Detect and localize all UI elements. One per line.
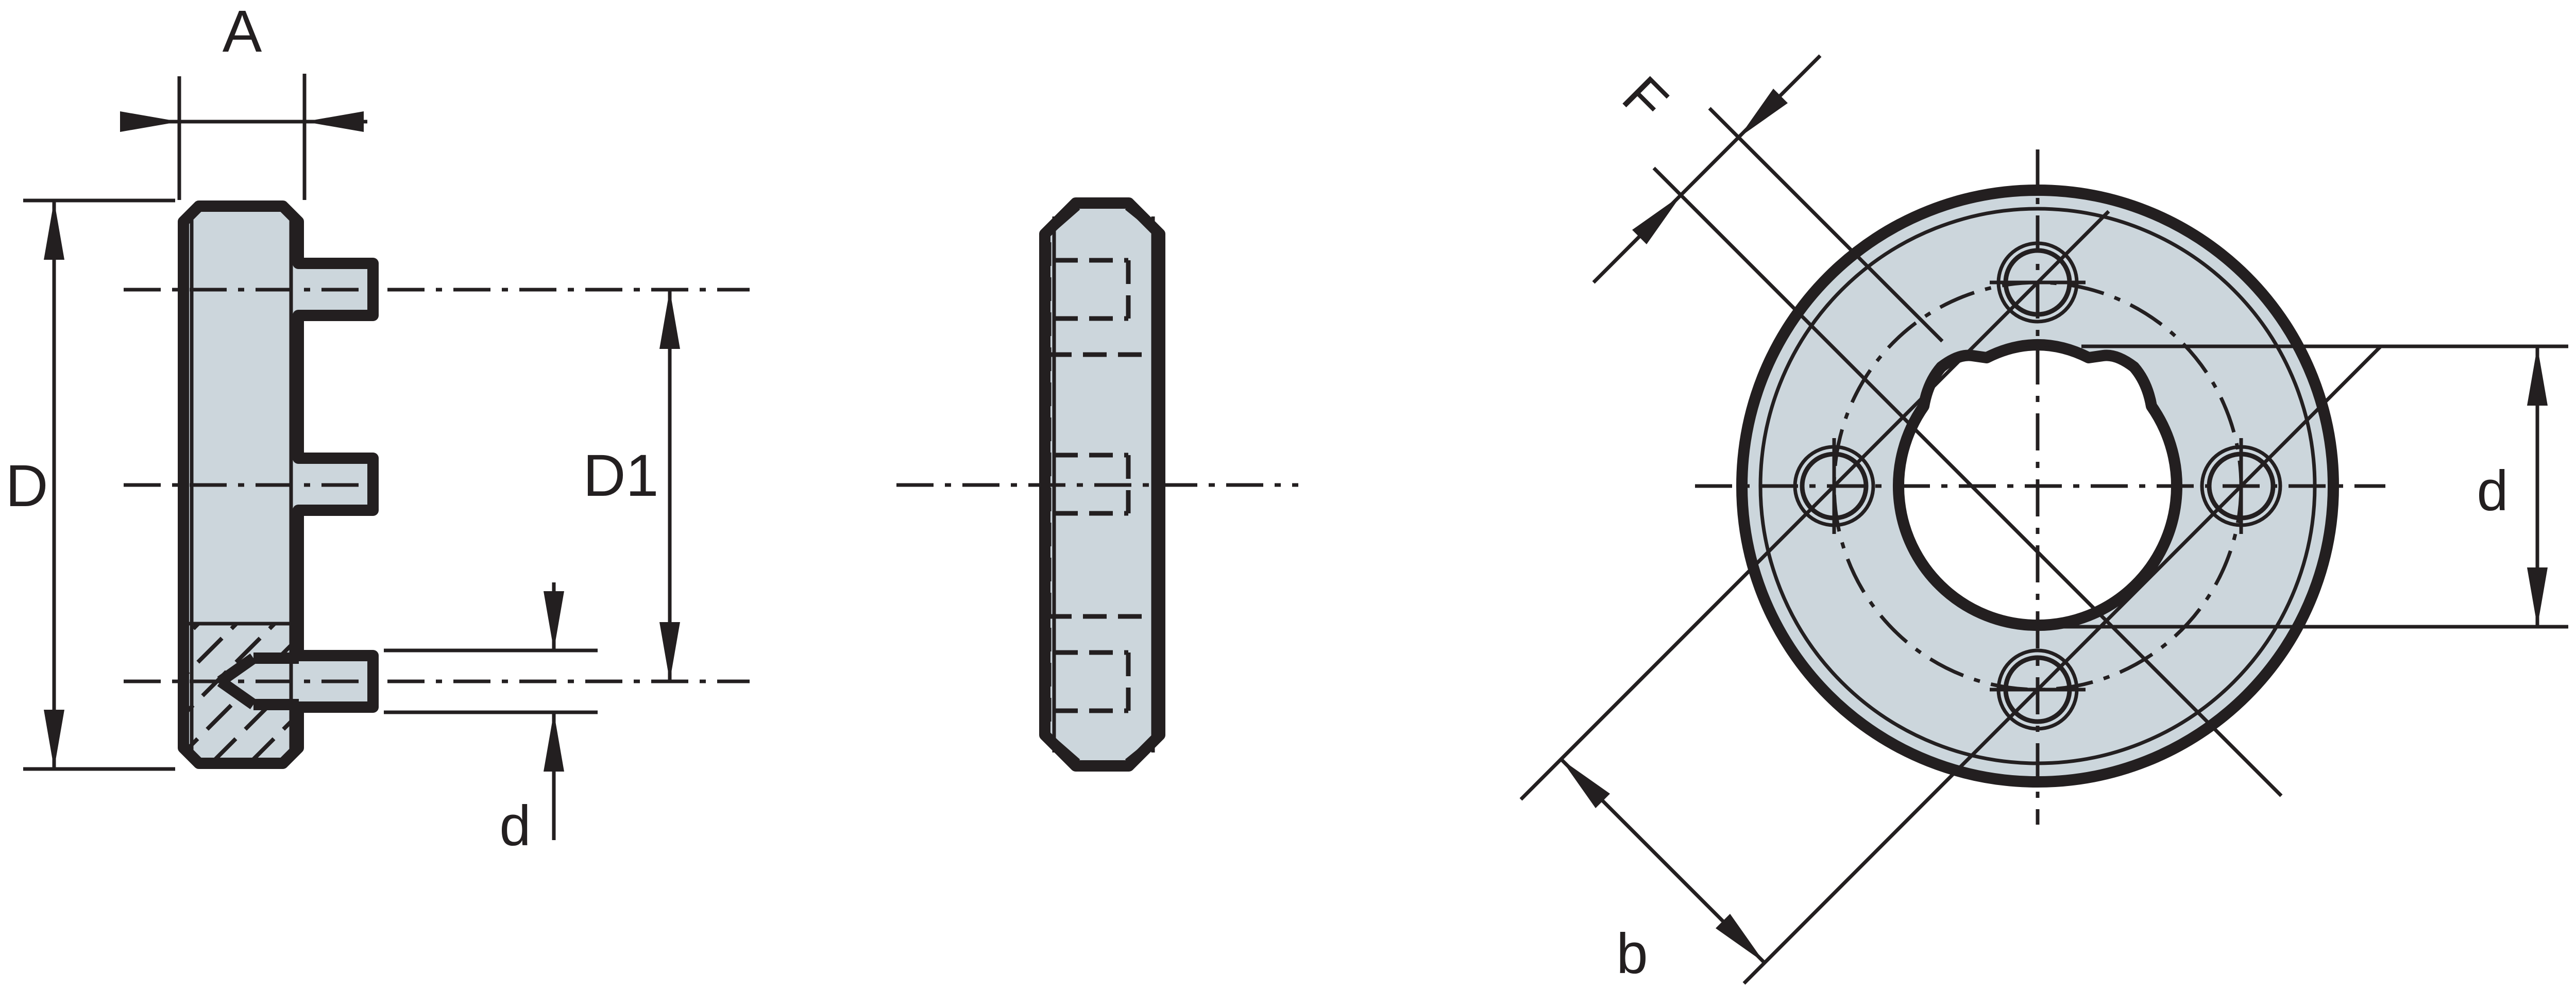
label-A: A: [223, 0, 262, 64]
arrow-up-right: [1632, 195, 1681, 244]
arrow-down: [44, 710, 64, 769]
label-D: D: [5, 453, 48, 519]
front-view: [1695, 149, 2385, 825]
arrow-down-left: [1739, 89, 1788, 138]
label-d-side: d: [499, 794, 531, 858]
label-b: b: [1616, 922, 1648, 985]
profile-view: [896, 203, 1298, 766]
label-D1: D1: [583, 443, 658, 509]
technical-drawing: A D D1 d: [0, 0, 2576, 987]
arrow-left: [120, 111, 179, 132]
label-d-front: d: [2477, 459, 2508, 523]
arrow-down: [659, 622, 680, 681]
label-F: F: [1611, 64, 1680, 133]
arrow-up: [2527, 346, 2548, 406]
arrow-right: [304, 111, 364, 132]
arrow-up: [659, 290, 680, 349]
dimension-A: A: [120, 0, 367, 200]
drawing-canvas: A D D1 d: [0, 0, 2576, 987]
arrow-up: [544, 712, 564, 772]
dimension-D1: D1: [583, 290, 680, 681]
arrow-down: [2527, 567, 2548, 627]
dimension-d-side: d: [384, 582, 598, 858]
arrow-up-left: [1561, 759, 1610, 808]
arrow-down-right: [1716, 914, 1765, 963]
arrow-down: [544, 591, 564, 650]
arrow-up: [44, 200, 64, 260]
